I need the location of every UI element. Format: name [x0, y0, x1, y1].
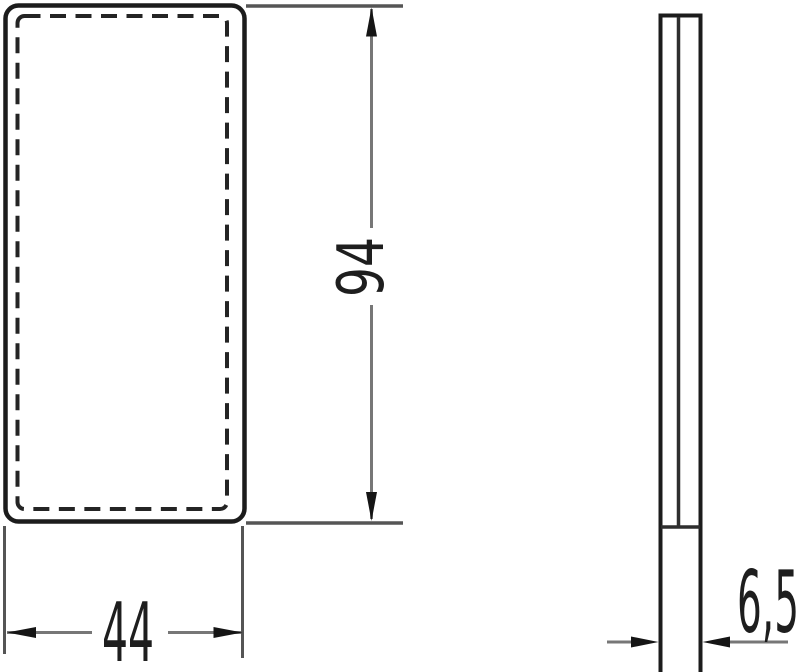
side-view — [661, 16, 701, 672]
height-arrowhead-up-icon — [366, 8, 377, 37]
width-dimension-label: 44 — [102, 586, 154, 672]
drawing-canvas: 94 44 6,5 — [0, 0, 800, 672]
dimension-height: 94 — [246, 6, 403, 523]
width-arrowhead-right-icon — [214, 627, 243, 638]
height-dimension-label: 94 — [325, 237, 399, 297]
depth-arrowhead-right-icon — [631, 637, 659, 648]
front-view-outline — [6, 6, 245, 522]
height-arrowhead-down-icon — [366, 492, 377, 521]
width-arrowhead-left-icon — [7, 627, 36, 638]
dimension-width: 44 — [5, 526, 243, 672]
dimension-depth: 6,5 — [607, 553, 799, 653]
front-view — [6, 6, 245, 522]
depth-dimension-label: 6,5 — [737, 553, 799, 653]
depth-arrowhead-left-icon — [703, 637, 731, 648]
technical-drawing: 94 44 6,5 — [0, 0, 800, 672]
side-view-outline — [661, 16, 701, 672]
